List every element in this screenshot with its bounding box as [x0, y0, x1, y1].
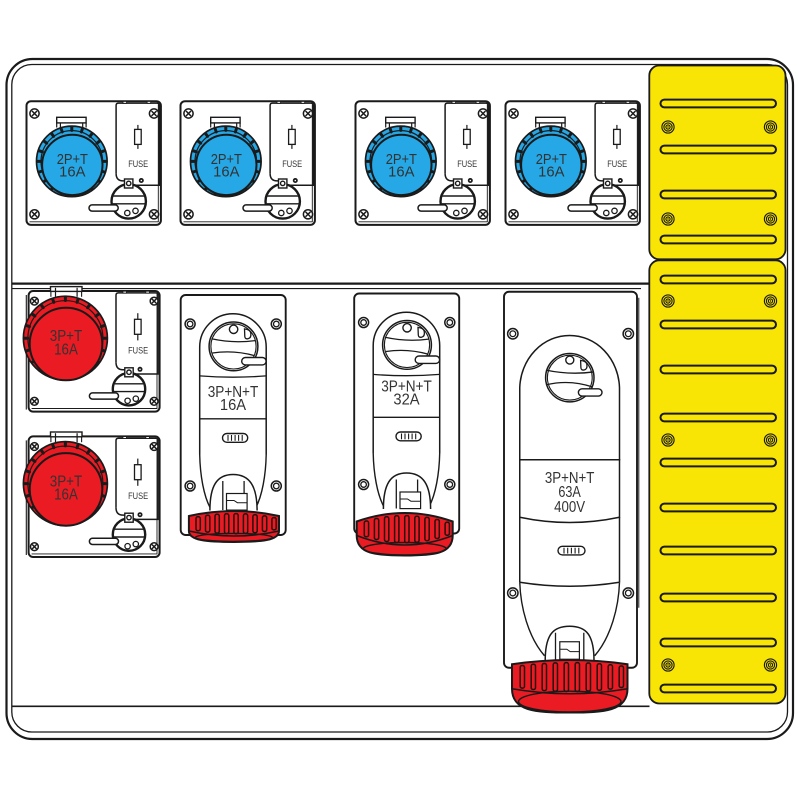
svg-text:16A: 16A	[54, 341, 78, 358]
svg-text:16A: 16A	[59, 164, 85, 180]
svg-text:FUSE: FUSE	[457, 158, 477, 169]
svg-text:FUSE: FUSE	[282, 158, 302, 169]
svg-text:FUSE: FUSE	[128, 490, 148, 501]
svg-text:16A: 16A	[213, 164, 239, 180]
svg-text:16A: 16A	[54, 487, 78, 504]
svg-text:16A: 16A	[538, 164, 564, 180]
svg-text:16A: 16A	[220, 397, 247, 414]
svg-text:32A: 32A	[393, 392, 420, 409]
svg-text:FUSE: FUSE	[128, 345, 148, 356]
svg-text:400V: 400V	[554, 499, 586, 516]
svg-text:FUSE: FUSE	[128, 158, 148, 169]
svg-text:FUSE: FUSE	[607, 158, 627, 169]
svg-text:16A: 16A	[388, 164, 414, 180]
